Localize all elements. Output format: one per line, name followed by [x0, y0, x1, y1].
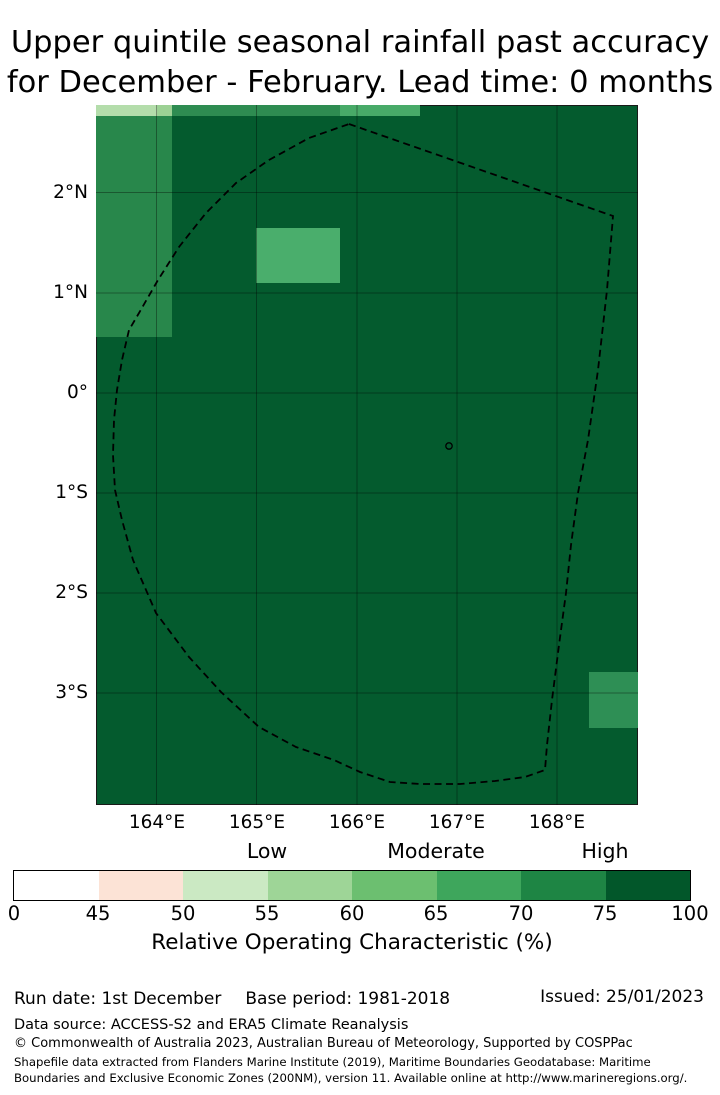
lon-tick-165e: 165°E — [212, 811, 302, 834]
colorbar-segment-70-75 — [521, 871, 606, 900]
colorbar-segment-55-60 — [268, 871, 353, 900]
footer-run-and-base: Run date: 1st DecemberBase period: 1981-… — [14, 989, 450, 1010]
lat-tick-3s: 3°S — [28, 681, 88, 704]
title-line-1: Upper quintile seasonal rainfall past ac… — [11, 26, 709, 60]
figure-title: Upper quintile seasonal rainfall past ac… — [0, 0, 720, 104]
colorbar-tick-50: 50 — [141, 902, 225, 926]
colorbar-tick-0: 0 — [0, 902, 56, 926]
legend-category-low: Low — [217, 839, 317, 863]
graticule-lines — [96, 105, 638, 805]
lat-tick-1s: 1°S — [28, 481, 88, 504]
shapefile-attribution-text: Shapefile data extracted from Flanders M… — [14, 1055, 720, 1086]
map-plot-area — [96, 105, 638, 805]
lat-tick-1n: 1°N — [28, 281, 88, 304]
lat-tick-2s: 2°S — [28, 581, 88, 604]
copyright-text: © Commonwealth of Australia 2023, Austra… — [14, 1036, 633, 1052]
issued-date-text: Issued: 25/01/2023 — [540, 987, 704, 1008]
colorbar-segment-75-100 — [606, 871, 691, 900]
colorbar-tick-100: 100 — [648, 902, 720, 926]
lon-tick-164e: 164°E — [112, 811, 202, 834]
lon-tick-166e: 166°E — [312, 811, 402, 834]
legend-category-high: High — [555, 839, 655, 863]
colorbar-axis-label: Relative Operating Characteristic (%) — [10, 930, 694, 956]
colorbar — [13, 870, 691, 901]
colorbar-tick-55: 55 — [225, 902, 309, 926]
title-line-2: for December - February. Lead time: 0 mo… — [7, 66, 713, 100]
base-period-text: Base period: 1981-2018 — [245, 989, 450, 1009]
lat-tick-2n: 2°N — [28, 181, 88, 204]
colorbar-tick-65: 65 — [394, 902, 478, 926]
data-source-text: Data source: ACCESS-S2 and ERA5 Climate … — [14, 1016, 408, 1034]
lon-tick-167e: 167°E — [412, 811, 502, 834]
legend-category-moderate: Moderate — [361, 839, 511, 863]
map-overlay-graphics — [96, 105, 638, 805]
colorbar-segment-0-45 — [14, 871, 99, 900]
island-location-marker — [446, 443, 452, 449]
colorbar-tick-60: 60 — [310, 902, 394, 926]
lon-tick-168e: 168°E — [512, 811, 602, 834]
colorbar-tick-75: 75 — [563, 902, 647, 926]
lat-tick-0: 0° — [28, 381, 88, 404]
colorbar-segment-60-65 — [352, 871, 437, 900]
colorbar-tick-70: 70 — [479, 902, 563, 926]
colorbar-segment-45-50 — [99, 871, 184, 900]
colorbar-segment-65-70 — [437, 871, 522, 900]
colorbar-tick-45: 45 — [56, 902, 140, 926]
colorbar-segment-50-55 — [183, 871, 268, 900]
figure-root: { "title": { "line1": "Upper quintile se… — [0, 0, 720, 1095]
eez-dashed-boundary — [113, 124, 613, 784]
run-date-text: Run date: 1st December — [14, 989, 221, 1009]
